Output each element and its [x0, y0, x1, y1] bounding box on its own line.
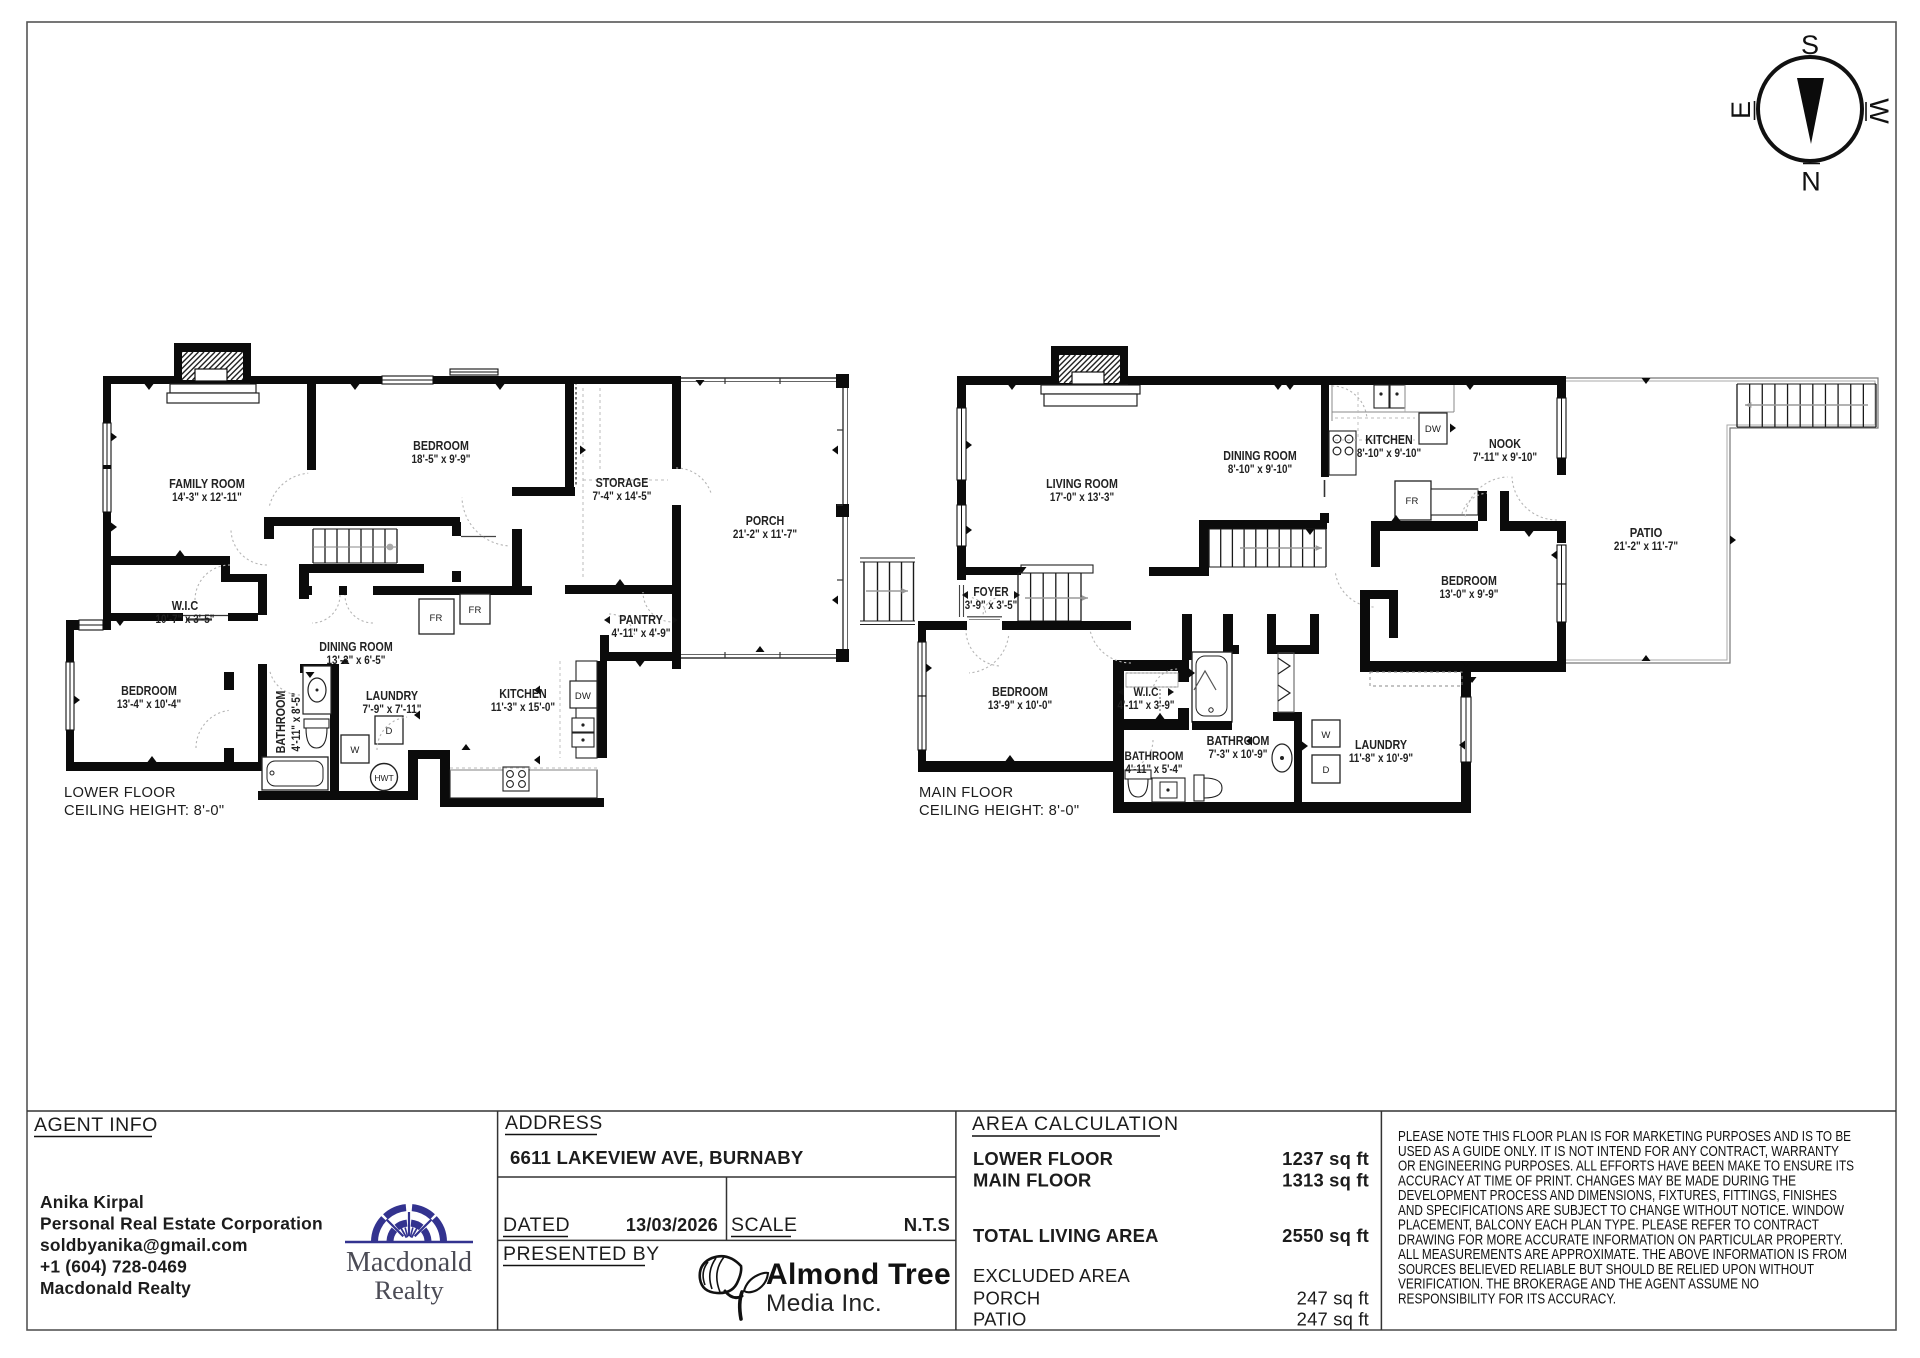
svg-text:FR: FR — [429, 613, 442, 624]
svg-text:18'-5" x 9'-9": 18'-5" x 9'-9" — [412, 452, 471, 466]
svg-text:4'-11" x 5'-4": 4'-11" x 5'-4" — [1126, 763, 1183, 776]
svg-text:N: N — [1801, 166, 1821, 196]
svg-text:SCALE: SCALE — [731, 1214, 797, 1236]
svg-text:N.T.S: N.T.S — [904, 1214, 950, 1235]
svg-text:FR: FR — [1405, 496, 1418, 507]
svg-text:4'-11" x 8'-5": 4'-11" x 8'-5" — [289, 693, 303, 752]
svg-text:11'-3" x 15'-0": 11'-3" x 15'-0" — [491, 700, 555, 714]
svg-text:soldbyanika@gmail.com: soldbyanika@gmail.com — [40, 1235, 248, 1255]
svg-text:BEDROOM: BEDROOM — [992, 684, 1048, 699]
svg-text:BATHROOM: BATHROOM — [1207, 733, 1270, 748]
svg-text:MAIN FLOOR: MAIN FLOOR — [973, 1170, 1091, 1191]
svg-text:13'-0" x 9'-9": 13'-0" x 9'-9" — [1440, 587, 1499, 601]
svg-text:1313 sq ft: 1313 sq ft — [1282, 1170, 1369, 1191]
svg-text:7'-11" x 9'-10": 7'-11" x 9'-10" — [1473, 450, 1537, 464]
svg-text:DW: DW — [1425, 424, 1441, 435]
svg-text:ADDRESS: ADDRESS — [505, 1112, 603, 1134]
svg-text:17'-0" x 13'-3": 17'-0" x 13'-3" — [1050, 490, 1114, 504]
svg-text:13'-9" x 10'-0": 13'-9" x 10'-0" — [988, 698, 1052, 712]
svg-text:11'-8" x 10'-9": 11'-8" x 10'-9" — [1349, 751, 1413, 765]
svg-text:BEDROOM: BEDROOM — [413, 438, 469, 453]
svg-text:7'-3" x 10'-9": 7'-3" x 10'-9" — [1209, 747, 1268, 761]
svg-text:Personal Real Estate Corporati: Personal Real Estate Corporation — [40, 1214, 323, 1234]
svg-text:W.I.C: W.I.C — [1134, 685, 1159, 699]
svg-text:3'-9" x 3'-5": 3'-9" x 3'-5" — [965, 598, 1018, 612]
svg-text:Anika Kirpal: Anika Kirpal — [40, 1192, 144, 1212]
svg-text:W: W — [1321, 730, 1330, 741]
svg-text:RESPONSIBILITY FOR ITS ACCURAC: RESPONSIBILITY FOR ITS ACCURACY. — [1398, 1290, 1616, 1307]
svg-text:PANTRY: PANTRY — [619, 612, 663, 627]
svg-text:PATIO: PATIO — [973, 1309, 1026, 1330]
svg-text:W: W — [1864, 98, 1894, 124]
svg-text:13/03/2026: 13/03/2026 — [626, 1215, 718, 1235]
svg-text:D: D — [385, 726, 392, 737]
svg-text:Macdonald: Macdonald — [346, 1247, 472, 1278]
svg-text:EXCLUDED AREA: EXCLUDED AREA — [973, 1265, 1130, 1286]
svg-text:KITCHEN: KITCHEN — [499, 686, 546, 701]
svg-text:D: D — [1322, 765, 1329, 776]
svg-text:4'-11" x 4'-9": 4'-11" x 4'-9" — [612, 626, 671, 640]
svg-text:CEILING HEIGHT: 8'-0": CEILING HEIGHT: 8'-0" — [64, 803, 224, 819]
svg-text:BEDROOM: BEDROOM — [121, 683, 177, 698]
svg-text:BATHROOM: BATHROOM — [1125, 749, 1184, 763]
svg-text:13'-3" x 6'-5": 13'-3" x 6'-5" — [327, 653, 386, 667]
svg-text:PORCH: PORCH — [973, 1288, 1040, 1309]
svg-text:NOOK: NOOK — [1489, 436, 1522, 451]
svg-text:7'-4" x 14'-5": 7'-4" x 14'-5" — [593, 489, 652, 503]
svg-text:W: W — [350, 745, 359, 756]
svg-text:Realty: Realty — [374, 1275, 444, 1305]
svg-text:10'-7" x 3'-5": 10'-7" x 3'-5" — [156, 612, 215, 626]
svg-text:LOWER FLOOR: LOWER FLOOR — [64, 785, 176, 801]
svg-text:FOYER: FOYER — [973, 585, 1008, 599]
svg-text:LIVING ROOM: LIVING ROOM — [1046, 476, 1118, 491]
svg-text:8'-10" x 9'-10": 8'-10" x 9'-10" — [1228, 462, 1292, 476]
svg-text:DW: DW — [575, 691, 591, 702]
svg-text:MAIN FLOOR: MAIN FLOOR — [919, 785, 1013, 801]
svg-text:Macdonald Realty: Macdonald Realty — [40, 1278, 191, 1298]
svg-text:247 sq ft: 247 sq ft — [1297, 1309, 1369, 1330]
svg-text:LAUNDRY: LAUNDRY — [1355, 737, 1407, 752]
svg-text:LAUNDRY: LAUNDRY — [366, 688, 418, 703]
svg-text:14'-3" x 12'-11": 14'-3" x 12'-11" — [172, 490, 242, 504]
svg-text:Media Inc.: Media Inc. — [766, 1290, 882, 1317]
svg-text:8'-10" x 9'-10": 8'-10" x 9'-10" — [1357, 446, 1421, 460]
svg-text:6611 LAKEVIEW AVE, BURNABY: 6611 LAKEVIEW AVE, BURNABY — [510, 1147, 804, 1168]
svg-text:4'-11" x 3'-9": 4'-11" x 3'-9" — [1118, 699, 1175, 712]
svg-text:1237 sq ft: 1237 sq ft — [1282, 1148, 1369, 1169]
svg-text:PORCH: PORCH — [746, 513, 785, 528]
svg-text:LOWER FLOOR: LOWER FLOOR — [973, 1148, 1113, 1169]
svg-text:FR: FR — [468, 605, 481, 616]
svg-text:13'-4" x 10'-4": 13'-4" x 10'-4" — [117, 697, 181, 711]
svg-text:KITCHEN: KITCHEN — [1365, 432, 1412, 447]
svg-text:S: S — [1801, 30, 1819, 60]
svg-text:Almond Tree: Almond Tree — [766, 1258, 951, 1291]
svg-text:AREA CALCULATION: AREA CALCULATION — [972, 1113, 1179, 1135]
svg-text:7'-9" x 7'-11": 7'-9" x 7'-11" — [363, 702, 422, 716]
svg-text:PRESENTED BY: PRESENTED BY — [503, 1243, 660, 1265]
svg-text:DINING ROOM: DINING ROOM — [319, 639, 392, 654]
svg-text:BATHROOM: BATHROOM — [273, 691, 288, 754]
svg-text:DATED: DATED — [503, 1214, 570, 1236]
svg-text:21'-2" x 11'-7": 21'-2" x 11'-7" — [1614, 539, 1678, 553]
svg-text:TOTAL LIVING AREA: TOTAL LIVING AREA — [973, 1225, 1159, 1246]
svg-text:DINING ROOM: DINING ROOM — [1223, 448, 1296, 463]
svg-text:BEDROOM: BEDROOM — [1441, 573, 1497, 588]
svg-text:+1 (604) 728-0469: +1 (604) 728-0469 — [40, 1257, 187, 1277]
svg-text:STORAGE: STORAGE — [596, 475, 649, 490]
svg-text:FAMILY ROOM: FAMILY ROOM — [169, 476, 245, 491]
svg-text:CEILING HEIGHT: 8'-0": CEILING HEIGHT: 8'-0" — [919, 803, 1079, 819]
svg-text:W.I.C: W.I.C — [172, 598, 199, 613]
svg-text:PATIO: PATIO — [1630, 525, 1663, 540]
svg-text:AGENT INFO: AGENT INFO — [34, 1114, 158, 1136]
svg-text:2550 sq ft: 2550 sq ft — [1282, 1225, 1369, 1246]
svg-text:HWT: HWT — [374, 773, 393, 783]
svg-text:21'-2" x 11'-7": 21'-2" x 11'-7" — [733, 527, 797, 541]
svg-text:247 sq ft: 247 sq ft — [1297, 1288, 1369, 1309]
svg-text:E: E — [1726, 101, 1756, 119]
